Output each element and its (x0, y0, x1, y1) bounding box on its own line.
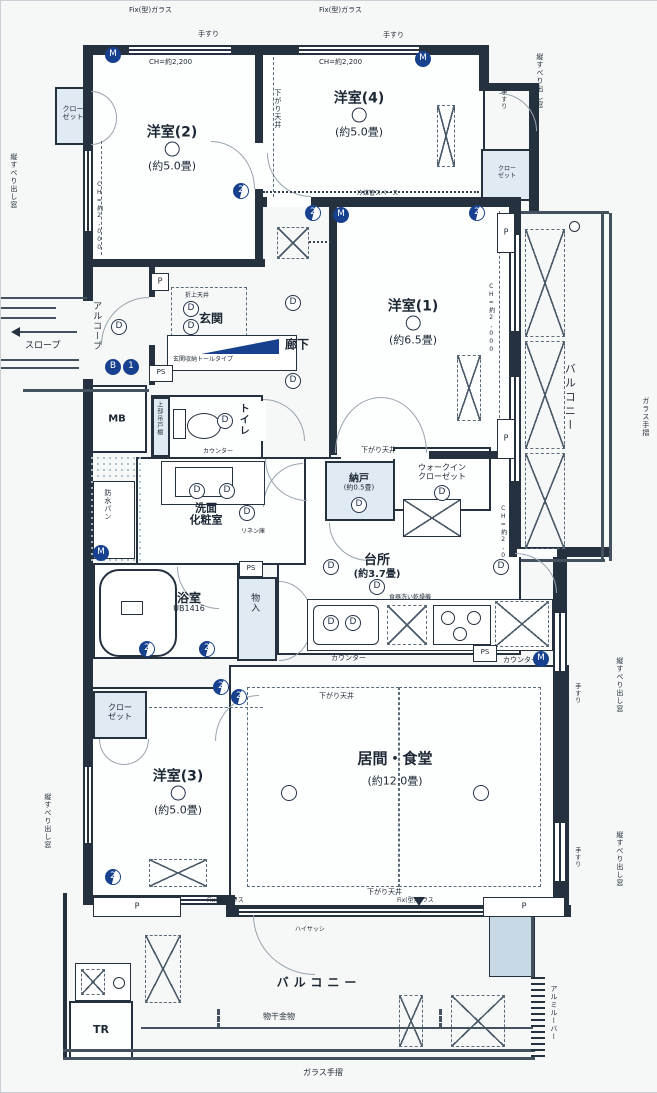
label-western-2: 洋室(2) (約5.0畳) (147, 126, 198, 173)
label-p: P (522, 903, 527, 912)
bath-faucet (121, 601, 143, 615)
ac-unit-slot (149, 859, 207, 887)
burner (441, 611, 455, 625)
drain-circle (569, 221, 580, 232)
symbol-2: 2 (305, 205, 321, 221)
label-handrail: 手すり (499, 89, 506, 110)
lowered-ceiling-line (149, 707, 263, 708)
ac-unit-slot (457, 355, 481, 421)
laundry-pole-hook (439, 1009, 442, 1029)
symbol-d: D (217, 413, 233, 429)
symbol-2: 2 (469, 205, 485, 221)
dishwasher-slot (387, 605, 427, 645)
label-glass-rail: ガラス手摺 (303, 1069, 343, 1078)
wall-mass (489, 915, 535, 977)
window-casement-left-w3 (83, 767, 93, 843)
symbol-2: 2 (199, 641, 215, 657)
label-sagari-tenjo: 下がり天井 (319, 693, 354, 701)
burner (453, 627, 467, 641)
door-gap (149, 297, 155, 345)
toilet-tank (173, 409, 186, 439)
label-refrigerant: 冷媒管スペース (357, 191, 398, 198)
label-handrail: 手すり (198, 31, 219, 39)
symbol-d: D (219, 483, 235, 499)
symbol-d: D (189, 483, 205, 499)
symbol-d: D (183, 319, 199, 335)
label-oriage: 折上天井 (185, 293, 209, 300)
label-casement-window: 縦すべり出し窓 (535, 53, 543, 109)
symbol-d: D (351, 497, 367, 513)
label-casement-window: 縦すべり出し窓 (9, 153, 17, 209)
label-p: P (158, 278, 163, 287)
vent-triangle (225, 897, 237, 906)
door-gap (255, 143, 263, 189)
slope-line (1, 307, 56, 309)
label-kitchen: 台所 (約3.7畳) (354, 554, 401, 580)
label-linen: リネン庫 (241, 529, 265, 536)
symbol-m: M (533, 651, 549, 667)
glass-rail (609, 213, 612, 561)
wall (255, 45, 263, 145)
label-balcony-bottom: バルコニー (277, 976, 362, 989)
balcony-ac-slot (525, 229, 565, 337)
vent-triangle (413, 897, 425, 906)
ceiling-light-icon (164, 141, 179, 156)
label-casement-window: 縦すべり出し窓 (615, 831, 623, 887)
drain-circle (113, 977, 125, 989)
glass-rail (63, 1057, 535, 1060)
window-casement-left-w2 (83, 151, 93, 231)
label-monohoshi: 物干金物 (263, 1013, 295, 1022)
ac-unit-slot (437, 105, 455, 167)
burner (467, 611, 481, 625)
label-bath: 浴室 UB1416 (173, 592, 205, 614)
label-p: P (504, 435, 509, 444)
label-fix-glass: Fix(型)ガラス (319, 7, 362, 15)
label-dishwasher: 食器洗い乾燥機 (389, 595, 431, 602)
label-toilet: トイレ (237, 403, 248, 436)
symbol-m: M (93, 545, 109, 561)
symbol-2: 2 (139, 641, 155, 657)
label-glass-rail: ガラス手摺 (641, 397, 649, 437)
symbol-d: D (323, 615, 339, 631)
label-closet-w2: クロー ゼット (63, 106, 84, 122)
storage-monoire (237, 577, 277, 661)
symbol-m: M (415, 51, 431, 67)
label-western-4: 洋室(4) (約5.0畳) (334, 92, 385, 139)
ceiling-light-icon (473, 785, 489, 801)
symbol-d: D (434, 485, 450, 501)
label-bousui-pan: 防水パン (103, 489, 111, 521)
aluminum-louver (531, 977, 545, 1059)
laundry-pole-hook (217, 1009, 220, 1029)
label-handrail: 手すり (573, 847, 580, 868)
label-alcove: アルコーブ (91, 301, 101, 351)
window-fix-top-left (129, 45, 231, 55)
symbol-b: B (105, 359, 121, 375)
wall-edge (531, 915, 534, 977)
label-louver: アルミルーバー (549, 985, 557, 1041)
label-handrail: 手すり (383, 32, 404, 40)
symbol-d: D (183, 301, 199, 317)
utility-box-inner (81, 969, 105, 995)
symbol-2: 2 (233, 183, 249, 199)
glass-rail (63, 1049, 535, 1052)
label-sagari-tenjo: 下がり天井 (273, 89, 281, 129)
label-western-3: 洋室(3) (約5.0畳) (153, 770, 204, 817)
wall (83, 259, 93, 301)
label-rouka: 廊下 (285, 338, 309, 351)
symbol-1: 1 (123, 359, 139, 375)
label-nando: 納戸 (約0.5畳) (344, 473, 375, 492)
label-p: P (135, 903, 140, 912)
glass-rail (601, 213, 604, 561)
label-casement-window: 縦すべり出し窓 (615, 657, 623, 713)
ceiling-light-icon (405, 315, 420, 330)
slope-line (1, 367, 79, 369)
wall (329, 201, 337, 455)
toilet-bowl (187, 413, 221, 439)
symbol-d: D (323, 559, 339, 575)
slope-arrow-head (11, 327, 20, 337)
hanging-cabinet (403, 499, 461, 537)
label-jobu: 上部吊戸棚 (155, 401, 162, 436)
balcony-ac-slot (525, 453, 565, 549)
ceiling-light-icon (281, 785, 297, 801)
label-slope: スロープ (25, 341, 60, 351)
ceiling-light-icon (351, 107, 366, 122)
label-ps: PS (247, 565, 256, 573)
label-balcony-right: バルコニー (563, 363, 575, 433)
label-ps: PS (481, 649, 490, 657)
symbol-2: 2 (231, 689, 247, 705)
label-wic: ウォークイン クローゼット (418, 464, 466, 482)
slope-arrow-line (19, 331, 77, 333)
label-handrail: 手すり (573, 683, 580, 704)
label-sagari-tenjo: 下がり天井 (367, 889, 402, 897)
slope-line (23, 389, 149, 392)
label-mb: MB (108, 413, 126, 424)
symbol-d: D (111, 319, 127, 335)
label-washroom: 洗面 化粧室 (190, 503, 223, 528)
label-living-dining: 居間・食堂 (約12.0畳) (357, 750, 432, 787)
label-monoire: 物入 (249, 593, 259, 613)
balcony-ac-slot (399, 995, 423, 1047)
balcony-ac-slot (451, 995, 505, 1047)
balcony-ac-slot (145, 935, 181, 1003)
label-western-1: 洋室(1) (約6.5畳) (388, 300, 439, 347)
slope-line (1, 359, 79, 361)
balcony-edge (521, 211, 609, 214)
label-ps: PS (157, 369, 166, 377)
label-casement-window: 縦すべり出し窓 (43, 793, 51, 849)
symbol-d: D (369, 579, 385, 595)
symbol-m: M (333, 207, 349, 223)
door-arc (263, 399, 305, 441)
slope-line (1, 297, 87, 299)
floor-plan: Fix(型)ガラス Fix(型)ガラス 手すり 手すり CH=約2,200 CH… (0, 0, 657, 1093)
symbol-d: D (285, 295, 301, 311)
refrigerator-slot (495, 601, 549, 647)
ceiling-light-icon (170, 785, 185, 800)
label-fix-glass: Fix(型)ガラス (129, 7, 172, 15)
label-tr: TR (93, 1024, 109, 1036)
window-fix-top-right (299, 45, 419, 55)
label-getabako: 玄関収納トールタイプ (173, 357, 233, 364)
label-ceiling-height: CH=約2,000 (95, 181, 102, 252)
symbol-d: D (239, 505, 255, 521)
label-sagari-tenjo: 下がり天井 (361, 447, 396, 455)
label-ceiling-height: CH=約2,000 (487, 283, 494, 354)
label-p: P (504, 229, 509, 238)
label-ceiling-height: CH=約2,200 (319, 59, 362, 67)
symbol-d: D (285, 373, 301, 389)
window-ld-right-1 (553, 613, 567, 671)
balcony-door-arc (253, 915, 315, 975)
label-ceiling-height: CH=約2,200 (149, 59, 192, 67)
label-genkan: 玄関 (199, 312, 223, 325)
symbol-2: 2 (213, 679, 229, 695)
slope-line (1, 317, 56, 319)
wall (83, 259, 265, 267)
ceiling-access-hatch (277, 227, 309, 259)
label-closet-w4: クロー ゼット (498, 166, 516, 179)
laundry-pole-line (141, 1027, 533, 1029)
symbol-d: D (345, 615, 361, 631)
balcony-ac-slot (525, 341, 565, 449)
shoe-cabinet-wedge (201, 339, 279, 354)
label-counter: カウンター (203, 449, 233, 456)
door-gap (267, 197, 311, 207)
symbol-d: D (493, 559, 509, 575)
window-ld-right-2 (553, 823, 567, 881)
wall (63, 893, 67, 1059)
symbol-m: M (105, 47, 121, 63)
label-closet-w3: クロー ゼット (108, 704, 132, 722)
symbol-2: 2 (105, 869, 121, 885)
dotted-line (309, 241, 331, 243)
label-hisash: ハイサッシ (295, 927, 325, 934)
label-counter: カウンター (331, 655, 366, 663)
